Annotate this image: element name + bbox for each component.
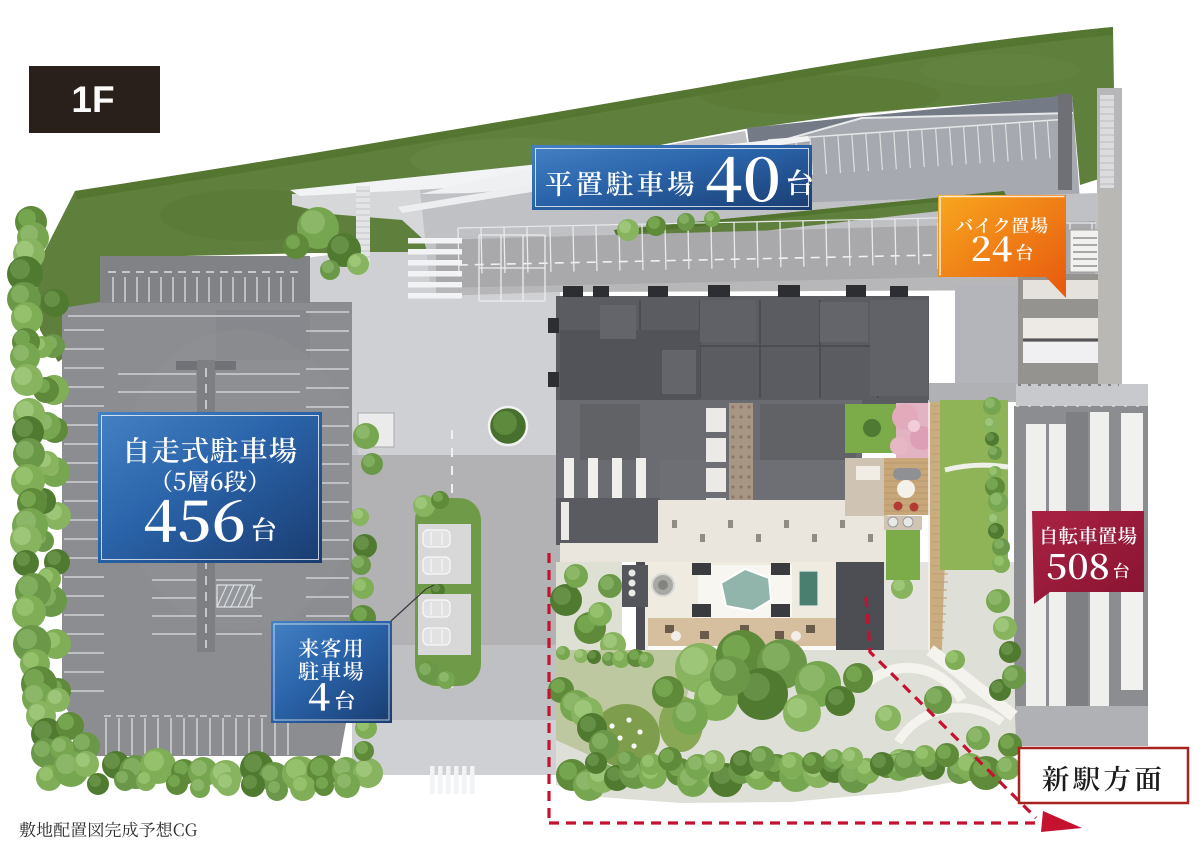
svg-text:1F: 1F <box>71 79 114 120</box>
